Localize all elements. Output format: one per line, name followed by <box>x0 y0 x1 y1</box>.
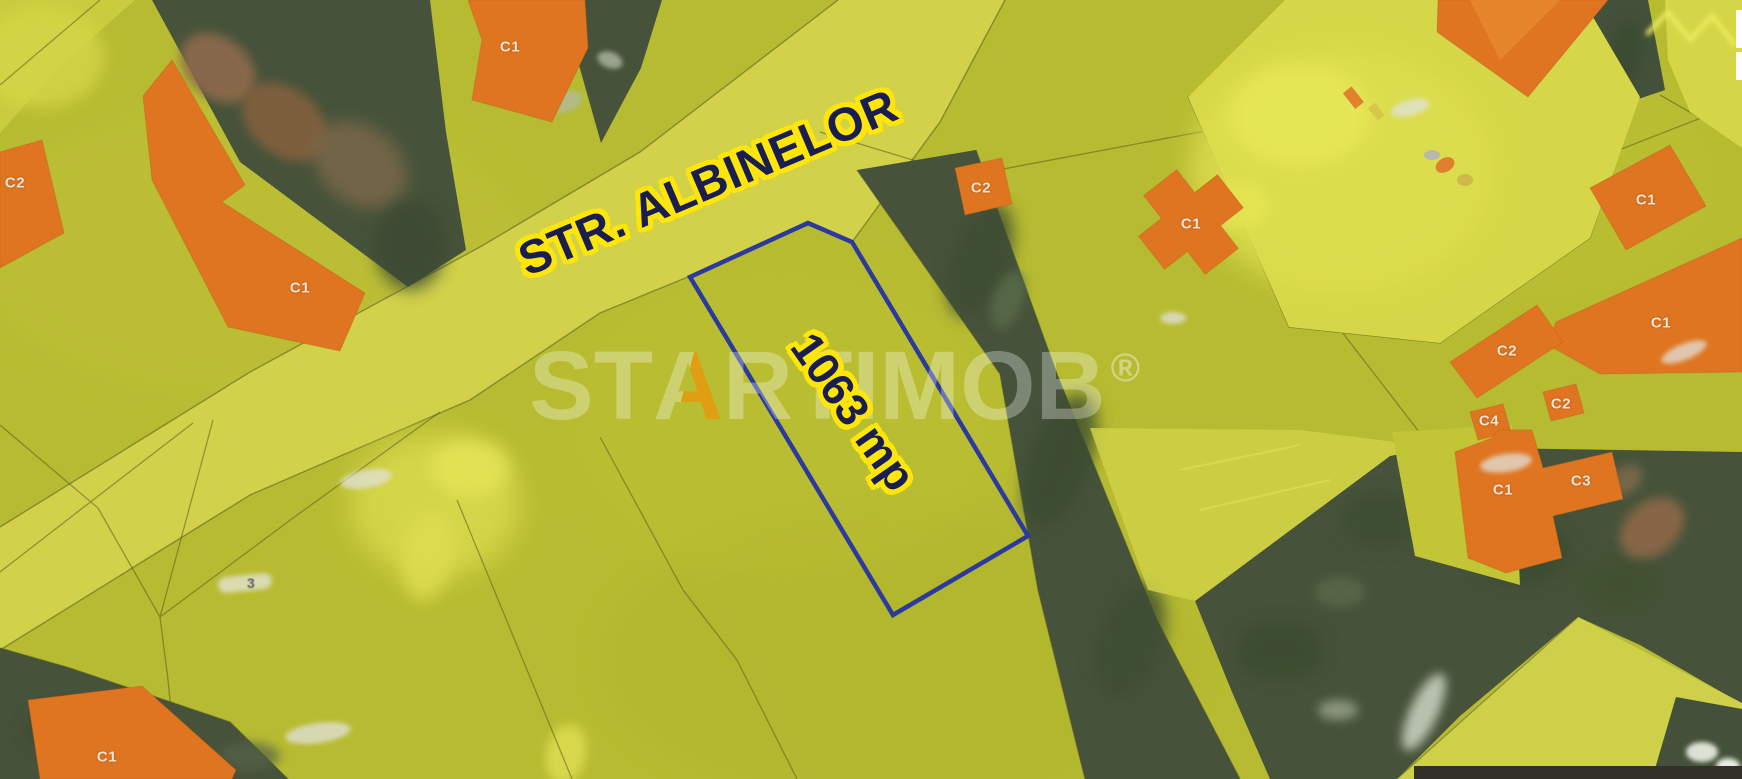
building-label: C2 <box>1551 396 1571 413</box>
building-label: C4 <box>1479 413 1499 430</box>
house-number-digit: 3 <box>247 575 255 591</box>
building-label: C1 <box>1651 315 1671 332</box>
cropped-ui-fragment <box>1736 52 1742 80</box>
building-label: C3 <box>1571 473 1591 490</box>
map-viewport: STARTIMOB® STR. ALBINELOR 1063 mp 3 C2 C… <box>0 0 1742 779</box>
building-label: C1 <box>1493 482 1513 499</box>
cropped-ui-fragment <box>1736 10 1742 48</box>
watermark-text-left: ST <box>529 337 653 434</box>
building-label: C1 <box>290 280 310 297</box>
registered-trademark-icon: ® <box>1111 348 1140 388</box>
watermark-letter-a: A <box>653 337 723 434</box>
building-label: C2 <box>5 175 25 192</box>
building-label: C2 <box>1497 343 1517 360</box>
bottom-dark-bar <box>1414 766 1742 779</box>
building-label: C1 <box>500 39 520 56</box>
building-label: C2 <box>971 180 991 197</box>
building-label: C1 <box>1636 192 1656 209</box>
building-label: C1 <box>97 749 117 766</box>
building-label: C1 <box>1181 216 1201 233</box>
